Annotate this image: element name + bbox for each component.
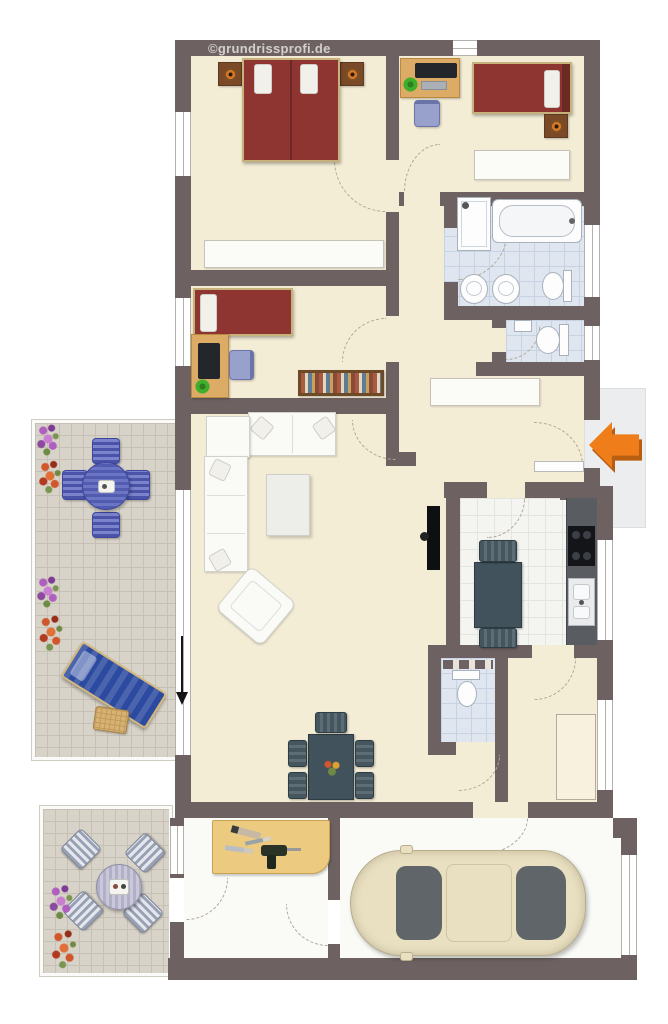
garage-door (621, 855, 637, 955)
toilet-tank (452, 670, 480, 680)
bidet-bowl (542, 272, 564, 300)
patio-chair (92, 438, 120, 464)
window (584, 326, 600, 360)
north-arrow (181, 636, 183, 694)
flower-bed (50, 926, 78, 970)
dining-table (308, 734, 354, 800)
shower-head-icon (462, 202, 469, 209)
seat-divider (207, 533, 245, 534)
toilet (536, 326, 560, 354)
tv (427, 506, 440, 570)
basin-bowl (466, 281, 482, 296)
bidet-tank (563, 270, 572, 302)
kitchen-chair (479, 628, 517, 648)
wall (428, 742, 456, 755)
dining-chair (355, 740, 374, 767)
keyboard (421, 81, 447, 90)
patio-table (96, 864, 142, 910)
lamp-icon (346, 68, 359, 81)
kitchen-sink (568, 578, 595, 626)
desk (191, 334, 229, 398)
wall (476, 362, 600, 376)
cushion (311, 415, 336, 440)
flower-bed (36, 574, 60, 608)
wall (386, 212, 399, 316)
wall (444, 282, 458, 306)
wc-shelf (443, 660, 493, 669)
cushion (208, 458, 232, 482)
drill-handle (267, 855, 276, 869)
kitchen-chair (479, 540, 517, 562)
bookshelf (298, 370, 384, 396)
hall-sideboard (430, 378, 540, 406)
cushion (208, 548, 233, 573)
dining-chair (315, 712, 347, 733)
hammer-icon (231, 825, 262, 840)
table-flowers (322, 759, 342, 777)
car-mirror (400, 845, 413, 854)
car-roof (446, 864, 512, 942)
window (175, 112, 191, 176)
built-in-closet (556, 714, 596, 800)
flower-bed (38, 612, 64, 652)
shower (457, 197, 491, 251)
wall (191, 270, 399, 286)
car-mirror (400, 952, 413, 961)
wall (444, 482, 487, 498)
seat-divider (292, 415, 293, 453)
double-bed (242, 58, 340, 162)
coffee-table (266, 474, 310, 536)
tray (109, 879, 129, 895)
burner-icon (583, 552, 591, 560)
wall (528, 802, 613, 818)
wardrobe (474, 150, 570, 180)
tv-speaker-icon (420, 532, 429, 541)
monitor (415, 63, 457, 78)
toilet-tank (559, 324, 569, 356)
cup-icon (121, 884, 126, 889)
wall (446, 498, 460, 645)
wall (428, 658, 441, 755)
window (175, 298, 191, 366)
floor-plan: ©grundrissprofi.de (0, 0, 668, 1024)
screwdriver-icon (225, 845, 253, 854)
wall (525, 482, 597, 498)
nightstand (544, 114, 568, 138)
burner-icon (572, 531, 580, 539)
watermark-text: ©grundrissprofi.de (208, 41, 331, 56)
drill-bit (287, 848, 301, 851)
wc-sink (514, 320, 532, 332)
sofa-corner (206, 416, 250, 458)
cooktop (568, 526, 595, 566)
burner-icon (572, 552, 580, 560)
window (453, 40, 477, 56)
car (350, 850, 586, 956)
patio-table (82, 462, 130, 510)
wall (386, 56, 399, 160)
bathtub (492, 199, 582, 243)
single-bed (193, 288, 293, 336)
pillow (544, 70, 560, 108)
patio-chair (92, 512, 120, 538)
window (597, 540, 613, 640)
wall (399, 452, 416, 466)
cup-icon (102, 484, 107, 489)
workbench (212, 820, 330, 874)
window (170, 826, 184, 874)
lamp-icon (224, 68, 237, 81)
sink-basin (573, 584, 590, 600)
side-table (92, 706, 129, 734)
car-rear-window (516, 866, 566, 940)
kitchen-table (474, 562, 522, 628)
wall (399, 192, 404, 206)
wall (574, 645, 597, 658)
dining-chair (355, 772, 374, 799)
sofa (248, 412, 336, 456)
front-door-leaf (534, 461, 584, 472)
faucet-icon (579, 600, 584, 605)
sofa (204, 456, 248, 572)
headboard (562, 64, 570, 112)
pillow (200, 294, 217, 332)
door-opening (328, 900, 340, 944)
dining-chair (288, 740, 307, 767)
terrace-glass-door (175, 490, 191, 755)
basin-bowl (498, 281, 514, 296)
single-bed (472, 62, 572, 114)
wall (492, 320, 506, 328)
wall (444, 206, 458, 228)
lamp-icon (550, 120, 563, 133)
nightstand (340, 62, 364, 86)
pillow (254, 64, 272, 94)
toilet (457, 681, 477, 707)
sink-basin (573, 606, 590, 619)
wall (444, 306, 584, 320)
wardrobe (204, 240, 384, 268)
dining-chair (288, 772, 307, 799)
armchair-seat (229, 579, 283, 632)
monitor (198, 343, 220, 379)
flower-bed (36, 422, 60, 456)
wall (175, 802, 473, 818)
cushion (249, 415, 274, 440)
desk (400, 58, 460, 98)
door-opening (170, 878, 184, 922)
car-windshield (396, 866, 442, 940)
washbasin (492, 274, 520, 304)
cup-icon (113, 884, 118, 889)
flower-bed (48, 882, 74, 920)
bidet (542, 270, 572, 302)
wall (584, 392, 600, 420)
wall (495, 658, 508, 802)
wall (492, 352, 506, 362)
nightstand (218, 62, 242, 86)
tray (98, 480, 115, 493)
watermark: ©grundrissprofi.de (208, 41, 448, 56)
window (584, 225, 600, 297)
bed-divider (290, 60, 292, 160)
pillow (300, 64, 318, 94)
burner-icon (583, 531, 591, 539)
plant-icon (195, 379, 210, 394)
wall (168, 958, 637, 980)
seat-divider (207, 495, 245, 496)
office-chair (229, 350, 254, 380)
plant-icon (403, 77, 418, 92)
faucet-icon (569, 218, 575, 224)
flower-bed (38, 458, 62, 494)
washbasin (460, 274, 488, 304)
office-chair (414, 100, 440, 127)
tub-basin (499, 205, 575, 237)
lounger-pillow (69, 650, 97, 682)
window (597, 700, 613, 790)
